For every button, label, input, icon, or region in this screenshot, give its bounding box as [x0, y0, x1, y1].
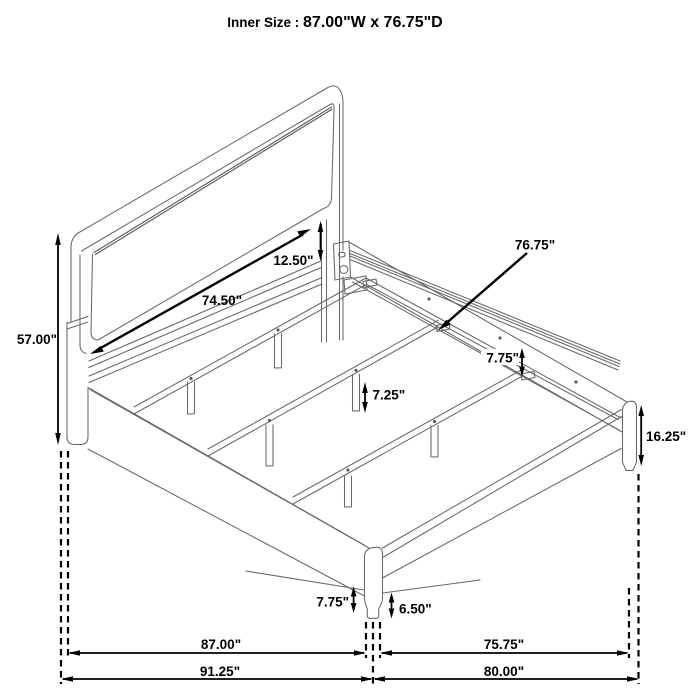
svg-text:57.00": 57.00" — [17, 332, 57, 347]
svg-text:80.00": 80.00" — [484, 664, 524, 679]
svg-text:7.75": 7.75" — [486, 351, 519, 366]
svg-text:7.75": 7.75" — [316, 595, 349, 610]
svg-text:6.50": 6.50" — [399, 602, 432, 617]
svg-text:76.75": 76.75" — [515, 238, 555, 253]
svg-text:87.00": 87.00" — [201, 637, 241, 652]
svg-text:75.75": 75.75" — [484, 637, 524, 652]
svg-text:7.25": 7.25" — [373, 388, 406, 403]
svg-text:12.50": 12.50" — [273, 253, 313, 268]
svg-text:16.25": 16.25" — [646, 429, 686, 444]
svg-text:74.50": 74.50" — [202, 293, 242, 308]
svg-text:91.25": 91.25" — [200, 664, 240, 679]
svg-text:Inner Size : 87.00"W x 76.75"D: Inner Size : 87.00"W x 76.75"D — [227, 14, 442, 31]
